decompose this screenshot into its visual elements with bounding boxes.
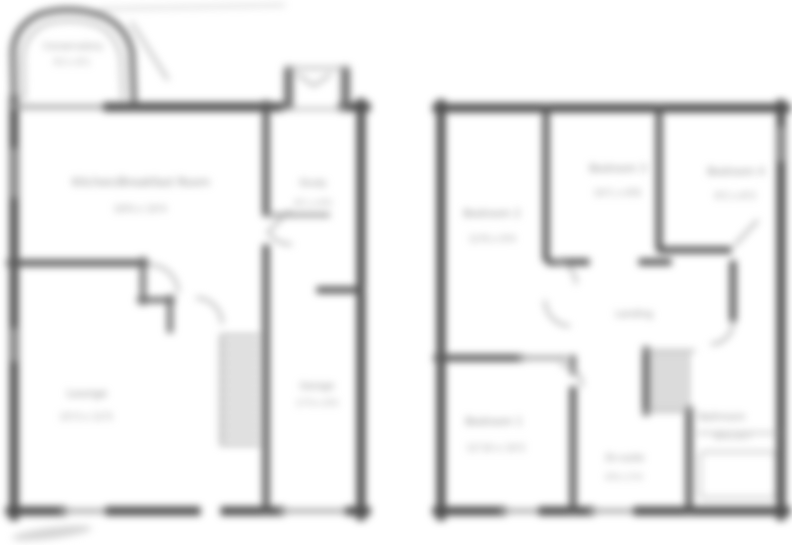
first-floor-doors: [545, 220, 758, 387]
kitchen-dims: 18'6 x 10'4: [113, 204, 166, 215]
bedroom1-label: Bedroom 1: [465, 416, 523, 428]
landing-label: Landing: [615, 309, 653, 320]
conservatory-dims: 9'2 x 8'1: [54, 58, 91, 68]
caption-smudge: [12, 523, 93, 544]
first-floor-stairs: [643, 350, 695, 412]
blurred-layer: Kitchen/Breakfast Room 18'6 x 10'4 Loung…: [0, 0, 792, 545]
bay-roof-line: [131, 22, 168, 80]
bedroom1-dims: 12'10 x 10'2: [466, 443, 525, 454]
lounge-dims: 15'3 x 12'5: [59, 412, 112, 423]
bedroom4-dims: 9'2 x 8'3: [714, 191, 755, 202]
conservatory-label: Conservatory: [43, 42, 104, 52]
ground-floor-stairs: [221, 334, 260, 446]
room-bedroom4: Bedroom 4 9'2 x 8'3: [707, 166, 765, 202]
bedroom4-label: Bedroom 4: [707, 166, 765, 178]
room-garage: Garage 17'0 x 8'0: [296, 381, 338, 409]
lounge-label: Lounge: [67, 387, 108, 400]
room-bedroom3: Bedroom 3 10'1 x 8'8: [589, 163, 647, 199]
bathroom-label: Bathroom: [699, 412, 746, 423]
bathroom-dims: 8'4 x 6'7: [715, 433, 752, 443]
room-bedroom1: Bedroom 1 12'10 x 10'2: [465, 416, 525, 454]
bedroom2-label: Bedroom 2: [463, 208, 521, 220]
ground-floor-outer-walls: [10, 100, 366, 516]
bedroom3-label: Bedroom 3: [589, 163, 647, 175]
roof-outline: [100, 5, 285, 9]
study-label: Study: [299, 178, 327, 189]
conservatory-bay: [13, 5, 285, 102]
kitchen-label: Kitchen/Breakfast Room: [72, 175, 210, 189]
room-ensuite: En-suite 6'6 x 5'4: [606, 453, 645, 483]
room-bathroom: Bathroom 8'4 x 6'7: [699, 412, 752, 443]
garage-dims: 17'0 x 8'0: [296, 399, 338, 409]
porch-post: [341, 66, 350, 108]
porch-post: [284, 66, 293, 108]
bath-tub: [700, 452, 776, 498]
room-kitchen: Kitchen/Breakfast Room 18'6 x 10'4: [72, 175, 210, 215]
floorplan-screenshot: Kitchen/Breakfast Room 18'6 x 10'4 Loung…: [0, 0, 792, 545]
room-landing: Landing: [615, 309, 653, 320]
floor-plan-drawing: Kitchen/Breakfast Room 18'6 x 10'4 Loung…: [0, 0, 792, 545]
room-study: Study 8'1 x 6'9: [295, 178, 332, 209]
room-bedroom2: Bedroom 2 12'6 x 9'4: [463, 208, 521, 245]
ensuite-dims: 6'6 x 5'4: [606, 473, 643, 483]
garage-label: Garage: [300, 381, 335, 392]
room-conservatory: Conservatory 9'2 x 8'1: [43, 42, 104, 68]
study-dims: 8'1 x 6'9: [295, 199, 332, 209]
room-lounge: Lounge 15'3 x 12'5: [59, 387, 112, 423]
ensuite-label: En-suite: [606, 453, 645, 464]
ground-floor-internal-walls: [10, 104, 361, 511]
ground-floor-plan: Kitchen/Breakfast Room 18'6 x 10'4 Loung…: [10, 5, 366, 543]
bedroom2-dims: 12'6 x 9'4: [468, 234, 515, 245]
first-floor-plan: Bedroom 2 12'6 x 9'4 Bedroom 3 10'1 x 8'…: [437, 104, 786, 516]
bedroom3-dims: 10'1 x 8'8: [593, 188, 640, 199]
